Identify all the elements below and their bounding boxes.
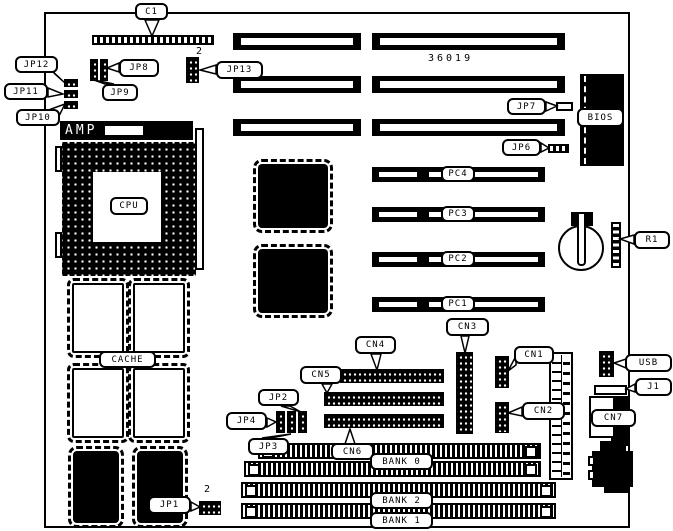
callout-pointer bbox=[508, 407, 522, 416]
callout-jp6: JP6 bbox=[502, 139, 541, 156]
callout-pointer bbox=[191, 502, 200, 511]
callout-j1: J1 bbox=[635, 378, 672, 396]
callout-jp8: JP8 bbox=[119, 59, 159, 77]
callout-pc2: PC2 bbox=[441, 251, 475, 267]
callout-cn1: CN1 bbox=[514, 346, 554, 364]
callout-jp11: JP11 bbox=[4, 83, 48, 100]
callout-jp4: JP4 bbox=[226, 412, 267, 430]
jp1-pin2-marker: 2 bbox=[204, 484, 210, 495]
callout-pointer bbox=[48, 88, 63, 97]
callout-bank1: BANK 1 bbox=[370, 512, 433, 529]
callout-bios: BIOS bbox=[577, 108, 624, 127]
callout-jp10: JP10 bbox=[16, 109, 60, 126]
callout-cn5: CN5 bbox=[300, 366, 342, 384]
motherboard-diagram: 36019 AMP bbox=[0, 0, 673, 531]
callout-pointer bbox=[322, 384, 332, 393]
callout-c1: C1 bbox=[135, 3, 168, 20]
callout-bank2: BANK 2 bbox=[370, 492, 433, 509]
callout-pointer bbox=[620, 235, 634, 244]
callout-pointer bbox=[281, 406, 301, 412]
callout-pointer bbox=[461, 336, 469, 353]
callout-cn7: CN7 bbox=[591, 409, 636, 427]
jp13-pin2-marker: 2 bbox=[196, 46, 202, 57]
callout-cpu: CPU bbox=[110, 197, 148, 215]
callout-jp13: JP13 bbox=[216, 61, 263, 79]
callout-cn6: CN6 bbox=[331, 443, 374, 460]
callout-pointer bbox=[626, 384, 635, 392]
callout-pointer bbox=[145, 20, 159, 36]
callout-cn4: CN4 bbox=[355, 336, 396, 354]
callout-pointer bbox=[345, 429, 355, 444]
callout-pointer bbox=[546, 102, 557, 111]
callout-jp3: JP3 bbox=[248, 438, 289, 455]
callout-jp2: JP2 bbox=[258, 389, 299, 406]
callout-pointer bbox=[541, 143, 549, 152]
callout-bank0: BANK 0 bbox=[370, 453, 433, 470]
callout-jp12: JP12 bbox=[15, 56, 58, 73]
callout-pc4: PC4 bbox=[441, 166, 475, 182]
callout-cn3: CN3 bbox=[446, 318, 489, 336]
callout-pointer bbox=[371, 354, 381, 370]
callout-jp1: JP1 bbox=[148, 496, 191, 514]
callout-jp7: JP7 bbox=[507, 98, 546, 115]
callout-pointer bbox=[200, 65, 216, 74]
callout-r1: R1 bbox=[634, 231, 670, 249]
callout-pc3: PC3 bbox=[441, 206, 475, 222]
callout-pointer bbox=[107, 63, 119, 72]
callout-cn2: CN2 bbox=[522, 402, 565, 420]
callout-pointer bbox=[267, 418, 276, 427]
callout-cache: CACHE bbox=[99, 351, 156, 368]
callout-jp9: JP9 bbox=[102, 84, 138, 101]
callout-usb: USB bbox=[625, 354, 672, 372]
callout-pc1: PC1 bbox=[441, 296, 475, 312]
